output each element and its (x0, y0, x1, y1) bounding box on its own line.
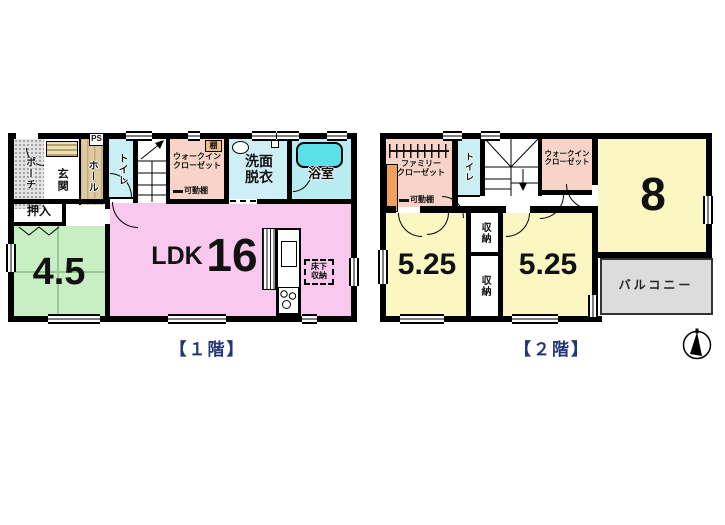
window (6, 244, 16, 272)
room-size-ldk: 16 (200, 229, 264, 283)
shoe-cabinet (46, 141, 78, 157)
wall-segment (287, 139, 292, 199)
underfloor-storage-box: 床下 収納 (304, 259, 334, 285)
room-size-45: 4.5 (20, 247, 98, 297)
room-label-hall: ホール (81, 148, 102, 204)
kitchen-counter-edge (262, 228, 276, 290)
storage-label-top: 収納 (471, 216, 498, 250)
room-label-porch: ポーチ (16, 146, 42, 200)
wall-segment (592, 210, 598, 258)
balcony-label: バルコニー (606, 273, 706, 299)
wall-segment (480, 139, 485, 196)
north-compass-icon (680, 326, 714, 362)
room-label-wic-1f: ウォークイン クローゼット (171, 150, 223, 174)
wall-segment (133, 139, 138, 203)
window (48, 314, 100, 324)
storage-label-bottom: 収納 (471, 260, 498, 312)
room-label-toilet-2f: トイレ (459, 143, 479, 191)
movable-shelf-label-1f: 可動棚 (184, 185, 222, 197)
window (400, 314, 444, 324)
wall-segment (103, 139, 109, 203)
floor1-caption: 【１階】 (150, 339, 265, 361)
movable-shelf-icon (173, 190, 183, 193)
wall-segment (498, 213, 503, 316)
wall-segment (224, 139, 229, 199)
wall-segment (538, 139, 542, 196)
shelf-label: 棚 (205, 140, 222, 152)
room-label-bath: 浴室 (297, 166, 345, 182)
wall-segment (105, 224, 110, 316)
room-size-8: 8 (612, 166, 694, 224)
movable-shelf-icon (399, 199, 409, 202)
wall-segment (166, 139, 170, 203)
wall-segment (166, 199, 229, 204)
window (277, 131, 299, 141)
window (252, 131, 276, 141)
floor2-caption: 【２階】 (497, 339, 607, 361)
toilet2-door-line (458, 195, 480, 197)
window (126, 131, 152, 141)
room-label-genkan: 玄関 (48, 158, 76, 202)
room-label-washroom: 洗面 脱衣 (235, 150, 283, 190)
room-size-525-left: 5.25 (390, 241, 464, 289)
washer-outlet-icon (271, 140, 279, 148)
window (512, 314, 558, 324)
stairs-1f (138, 139, 166, 202)
oshiire-zigzag (17, 225, 62, 237)
movable-shelf-label-2f: 可動棚 (410, 194, 446, 206)
window (703, 196, 713, 224)
room-label-toilet-1f: トイレ (112, 144, 131, 194)
window (188, 131, 200, 141)
window (302, 314, 317, 324)
wall-segment (257, 199, 351, 204)
bathtub (296, 142, 343, 168)
window (378, 250, 388, 284)
wall-segment (592, 139, 598, 185)
room-size-525-right: 5.25 (508, 241, 588, 289)
window (443, 131, 462, 141)
window (481, 131, 500, 141)
wall-segment (62, 203, 66, 226)
kitchen-sink (281, 241, 297, 267)
window (327, 131, 347, 141)
wall-segment (105, 199, 110, 209)
wall-segment (386, 206, 396, 213)
porch-opening (16, 133, 38, 139)
window (588, 295, 598, 317)
toilet-door-line (109, 197, 133, 199)
kitchen-stove (278, 287, 299, 314)
room-label-oshiire: 押入 (16, 202, 62, 222)
room-label-ldk: LDK (146, 241, 208, 271)
floor-plan-canvas: 床下 収納 ポーチ 玄関 ホール PS トイレ ウォークイン クローゼット 棚 … (0, 0, 725, 525)
hanger-rail (389, 150, 449, 152)
room-label-family-closet: ファミリー クローゼット (390, 158, 452, 180)
room-label-wic-2f: ウォークイン クローゼット (543, 147, 591, 169)
ps-label: PS (89, 133, 104, 146)
sliding-door-dash (230, 200, 256, 202)
stairs-2f (485, 139, 538, 196)
window (349, 258, 359, 286)
window (168, 314, 226, 324)
wall-segment (471, 252, 498, 256)
